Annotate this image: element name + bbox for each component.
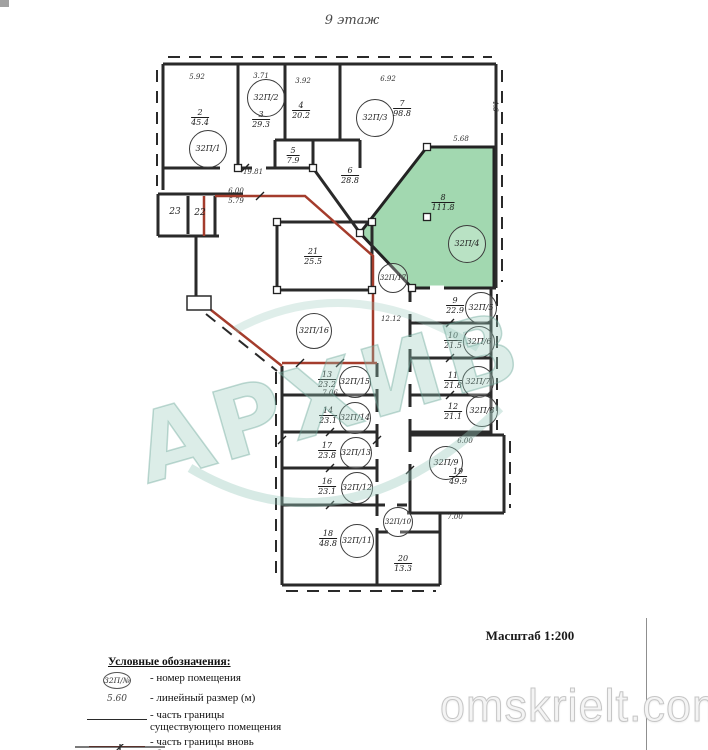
legend: Условные обозначения: 32П/№- номер помещ… xyxy=(84,656,384,750)
legend-dim-text: 5.60 xyxy=(107,694,127,704)
floor-title: 9 этаж xyxy=(302,13,402,28)
legend-item: 5.60- линейный размер (м) xyxy=(84,692,384,706)
legend-item-label: - часть границы существующего помещения xyxy=(150,709,281,733)
legend-black-line xyxy=(87,719,147,720)
existing-walls xyxy=(158,64,504,585)
legend-symbol xyxy=(84,709,150,723)
legend-item-label: - номер помещения xyxy=(150,672,241,684)
legend-item-label: - линейный размер (м) xyxy=(150,692,255,704)
legend-item: 32П/№- номер помещения xyxy=(84,672,384,689)
legend-dimension-symbol xyxy=(70,744,170,750)
wall-niche xyxy=(187,296,211,310)
legend-symbol: 5.60 xyxy=(84,692,150,706)
legend-rows: 32П/№- номер помещения5.60- линейный раз… xyxy=(84,672,384,750)
page-border-line xyxy=(646,618,647,750)
legend-item: - часть границы существующего помещения xyxy=(84,709,384,733)
floor-plan-page: 9 этаж 32П/132П/232П/332П/432П/1732П/163… xyxy=(0,0,708,750)
legend-room-circle: 32П/№ xyxy=(103,672,131,689)
scale-label: Масштаб 1:200 xyxy=(450,628,610,644)
scan-artifact xyxy=(0,0,9,7)
legend-symbol: 32П/№ xyxy=(84,672,150,689)
legend-heading: Условные обозначения: xyxy=(108,656,384,668)
